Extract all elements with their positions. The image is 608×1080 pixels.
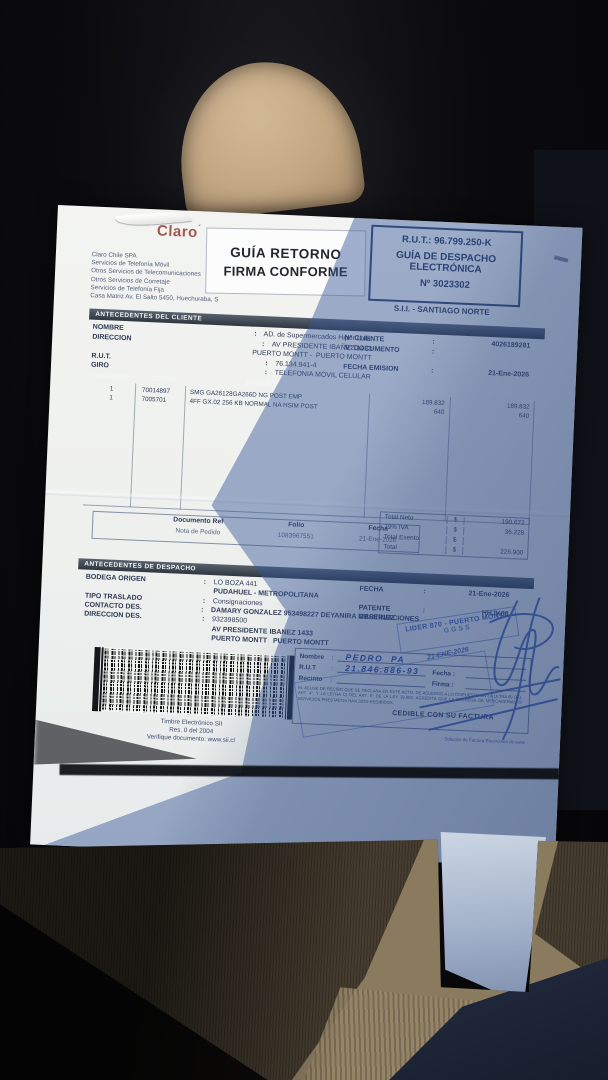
table-gridline xyxy=(180,386,186,510)
claro-logo-text: Claro xyxy=(157,222,199,241)
rut-document-box: R.U.T.: 96.799.250-K GUÍA DE DESPACHO EL… xyxy=(368,225,523,308)
ink-smudge xyxy=(554,255,569,262)
totals-box: Total Neto $ 190.672 19% IVA $ 36.228 To… xyxy=(378,511,530,560)
folio-header: Folio xyxy=(251,520,341,531)
item-qty: 1 xyxy=(87,393,134,404)
col-header-codigo: CODIGO xyxy=(150,373,179,385)
company-info-block: Claro Chile SPA Servicios de Telefonía M… xyxy=(90,251,220,304)
issuer-rut: R.U.T.: 96.799.250-K xyxy=(373,233,521,250)
col-header-cantidad: CANTIDAD xyxy=(91,371,129,384)
doc-number: Nº 3023302 xyxy=(371,276,519,293)
guia-retorno-line1: GUÍA RETORNO xyxy=(230,244,342,261)
guia-retorno-line2: FIRMA CONFORME xyxy=(223,263,347,279)
signature-scribble xyxy=(415,589,567,747)
delivery-note-paper: Claro´ Claro Chile SPA Servicios de Tele… xyxy=(30,205,582,867)
claro-logo: Claro´ xyxy=(157,221,202,241)
col-header-monto: MONTO xyxy=(486,388,513,400)
paper-corner-in-shade xyxy=(434,832,546,1004)
pdf417-barcode xyxy=(92,647,295,720)
claro-logo-accent: ´ xyxy=(198,223,202,233)
table-gridline xyxy=(528,401,534,525)
folio-value: 1083967551 xyxy=(251,531,341,542)
fold-shadow-band xyxy=(59,764,582,780)
client-row-right: FECHA EMISION : 21-Ene-2026 xyxy=(343,362,529,379)
col-header-descripcion: DESCRIPCION xyxy=(246,377,296,390)
item-code: 7005701 xyxy=(141,395,166,405)
barcode-caption: Timbre Electrónico SII Res. 0 del 2004 V… xyxy=(91,715,292,748)
guia-retorno-stamp: GUÍA RETORNO FIRMA CONFORME xyxy=(205,227,366,296)
